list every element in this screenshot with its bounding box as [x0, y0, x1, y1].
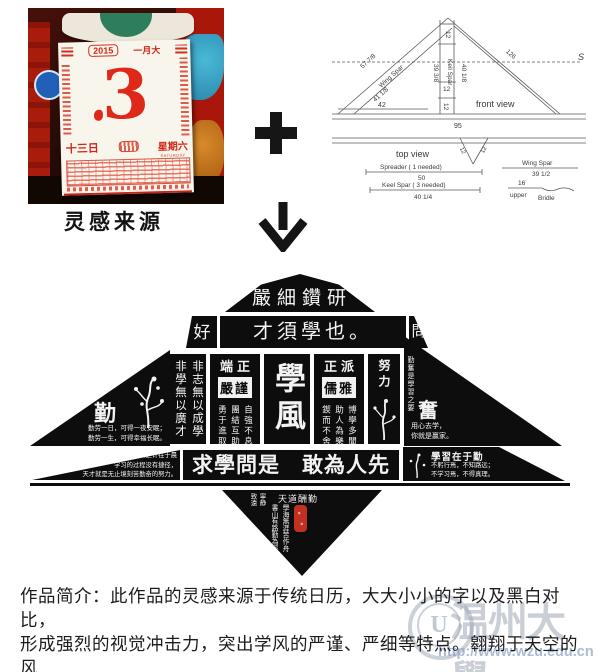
motto-col1: 非志無以成學	[188, 357, 205, 441]
dim-keelspar-len: 40 1/4	[414, 194, 432, 201]
dim-v-right: 12	[480, 145, 489, 154]
left-wing-line1: 勤劳一日，可得一夜安眠；	[42, 424, 166, 434]
label-spreader: Spreader ( 1 needed)	[380, 164, 442, 171]
motto-col2: 非學無以廣才	[171, 357, 188, 441]
dim-wingspar-len: 39 1/2	[532, 171, 550, 178]
col-b-title: 端正	[210, 354, 260, 376]
kite-blueprint-diagram: 57 7/8 Wing Spar 41 1/8 12 39 3/8 Keil S…	[330, 10, 592, 202]
dim-seg-mid: 12	[443, 86, 451, 93]
col-d-whitebox: 儒雅	[322, 377, 356, 398]
kite-left-wing-panel: 勤 勤劳一日，可得一夜安眠； 勤劳一生，可得幸福长眠。	[30, 350, 170, 446]
col-d-mini3: 鍥而不舍	[320, 401, 333, 451]
small-branch-graphic	[407, 453, 427, 479]
band-center-text: 求學問是 敢為人先	[183, 450, 399, 480]
band-right-line1: 不躬行焉，不知路远；	[431, 462, 531, 471]
almanac-right-column	[179, 57, 189, 135]
kite-nuli-column: 努力	[368, 354, 400, 444]
apex-text: 嚴細鑽研	[225, 283, 375, 310]
down-arrow-icon	[258, 200, 308, 252]
band-right-line2: 不学习焉，不得真理。	[431, 471, 531, 480]
tail-col1: 學海無涯苦作舟	[279, 504, 290, 552]
label-top-view: top view	[396, 149, 430, 159]
sprout-branch-graphic	[372, 398, 396, 442]
calendar-weekday: 星期六	[158, 137, 188, 153]
label-bridle-upper: upper	[510, 192, 527, 199]
lunar-date-pill	[118, 141, 138, 153]
dim-bridle-len: 16	[518, 180, 526, 187]
plus-icon	[255, 112, 297, 154]
red-banner	[28, 22, 50, 202]
kite-motto-column: 非志無以成學 非學無以廣才	[170, 354, 206, 444]
dim-spreader-len: 50	[418, 175, 426, 182]
calendar-page: 2015 一月大 3 十三日 星期六 SATURDAY	[58, 39, 194, 195]
zodiac-horse-icon	[94, 110, 103, 121]
inspiration-label: 灵感来源	[64, 206, 164, 236]
header-ornament-right	[175, 44, 187, 53]
dim-leading-edge: 57 7/8	[359, 53, 377, 71]
label-keelspar: Keel Spar ( 3 needed)	[382, 182, 446, 189]
kite-apex-panel: 嚴細鑽研	[225, 274, 375, 312]
dim-right-edge: 126	[504, 48, 517, 61]
work-description: 作品简介：此作品的灵感来源于传统日历，大大小小的字以及黑白对比， 形成强烈的视觉…	[20, 584, 592, 672]
dim-base-left: 42	[378, 102, 386, 109]
tail-corner-text: 寧静致遠	[248, 493, 266, 511]
plum-branch-graphic	[128, 374, 168, 430]
kite-right-wing-panel: 勤奮是學習之要 奮 用心去学， 你就是赢家。	[404, 336, 562, 446]
col-b-whitebox: 嚴謹	[218, 377, 252, 398]
col-b-mini1: 自強不息	[242, 401, 255, 451]
label-s: S	[578, 52, 584, 62]
kite-band-left-panel: 一年之计在于春，一日之计在于晨 学习的过程没有捷径， 天才就是无止境刻苦勤奋的努…	[32, 450, 180, 480]
col-b-mini2: 團結互助	[229, 401, 242, 451]
label-bridle: Bridle	[538, 195, 555, 202]
label-wingspar-list: Wing Spar	[522, 160, 553, 167]
previous-page-number	[100, 13, 152, 37]
band-right-title: 學習在于勤	[431, 449, 484, 463]
col-d-mini2: 助人為樂	[333, 401, 346, 451]
col-e-text: 努力	[376, 357, 392, 393]
calendar-curled-page	[62, 13, 194, 43]
calendar-day-number: 3	[86, 52, 164, 138]
dim-seg-low: 12	[442, 103, 449, 111]
almanac-grid	[66, 157, 191, 186]
kite-center-column: 學風	[264, 354, 310, 444]
description-line1: 作品简介：此作品的灵感来源于传统日历，大大小小的字以及黑白对比，	[20, 584, 592, 632]
left-wing-line2: 勤劳一生，可得幸福长眠。	[42, 434, 166, 444]
band-left-line2: 学习的过程没有捷径，	[33, 461, 177, 471]
kite-tail-panel: 寧静致遠 天道酬勤 學海無涯苦作舟 書山有路勤為徑	[222, 490, 382, 576]
description-line2: 形成强烈的视觉冲击力，突出学风的严谨、严细等特点。翱翔于天空的风	[20, 632, 592, 672]
red-seal-stamp	[294, 505, 307, 532]
tail-col2: 書山有路勤為徑	[268, 504, 279, 552]
col-d-mini1: 博學多聞	[346, 401, 359, 451]
dim-seg-top: 12	[444, 31, 451, 39]
kite-row2-band: 好 才須學也。 問	[186, 316, 428, 348]
kite-trailing-edge-rule	[30, 483, 570, 486]
row2-center-text: 才須學也。	[222, 316, 404, 348]
kite-band-right-panel: 學習在于勤 不躬行焉，不知路远； 不学习焉，不得真理。	[403, 447, 565, 481]
col-b-mini3: 勇于進取	[216, 401, 229, 451]
calendar-weekday-block: 星期六 SATURDAY	[158, 137, 189, 158]
almanac-left-column	[62, 62, 72, 134]
right-wing-big-char: 奮	[418, 394, 438, 423]
band-left-line3: 天才就是无止境刻苦勤奋的努力。	[33, 470, 177, 480]
band-left-line1: 一年之计在于春，一日之计在于晨	[33, 451, 177, 461]
row2-left-text: 好	[188, 316, 216, 350]
row2-divider-1	[217, 316, 220, 348]
dim-keel-right: 40 1/8	[460, 64, 467, 82]
col-d-title: 正派	[314, 354, 364, 376]
dim-base-total: 95	[454, 123, 462, 130]
kite-duanzheng-column: 端正 嚴謹 自強不息 團結互助 勇于進取	[210, 354, 260, 444]
calendar-midrow: 十三日 星期六 SATURDAY	[66, 137, 188, 158]
kite-zhengpai-column: 正派 儒雅 博學多聞 助人為樂 鍥而不舍	[314, 354, 364, 444]
dim-keel-left: 39 3/8	[432, 64, 439, 82]
right-wing-line2: 你就是赢家。	[411, 432, 495, 442]
poster-page: 2015 一月大 3 十三日 星期六 SATURDAY 灵感来源	[0, 0, 600, 672]
label-keil-spar: Keil Spar	[446, 59, 453, 86]
label-front-view: front view	[476, 99, 515, 109]
header-ornament-left	[61, 47, 73, 56]
right-wing-line1: 用心去学，	[411, 422, 495, 432]
kite-band-center-panel: 求學問是 敢為人先	[183, 450, 399, 480]
calendar-photo: 2015 一月大 3 十三日 星期六 SATURDAY	[28, 8, 224, 204]
center-big-text: 學風	[265, 356, 309, 442]
right-wing-vertical-text: 勤奮是學習之要	[406, 356, 416, 430]
calendar-day-cn: 十三日	[66, 140, 99, 157]
